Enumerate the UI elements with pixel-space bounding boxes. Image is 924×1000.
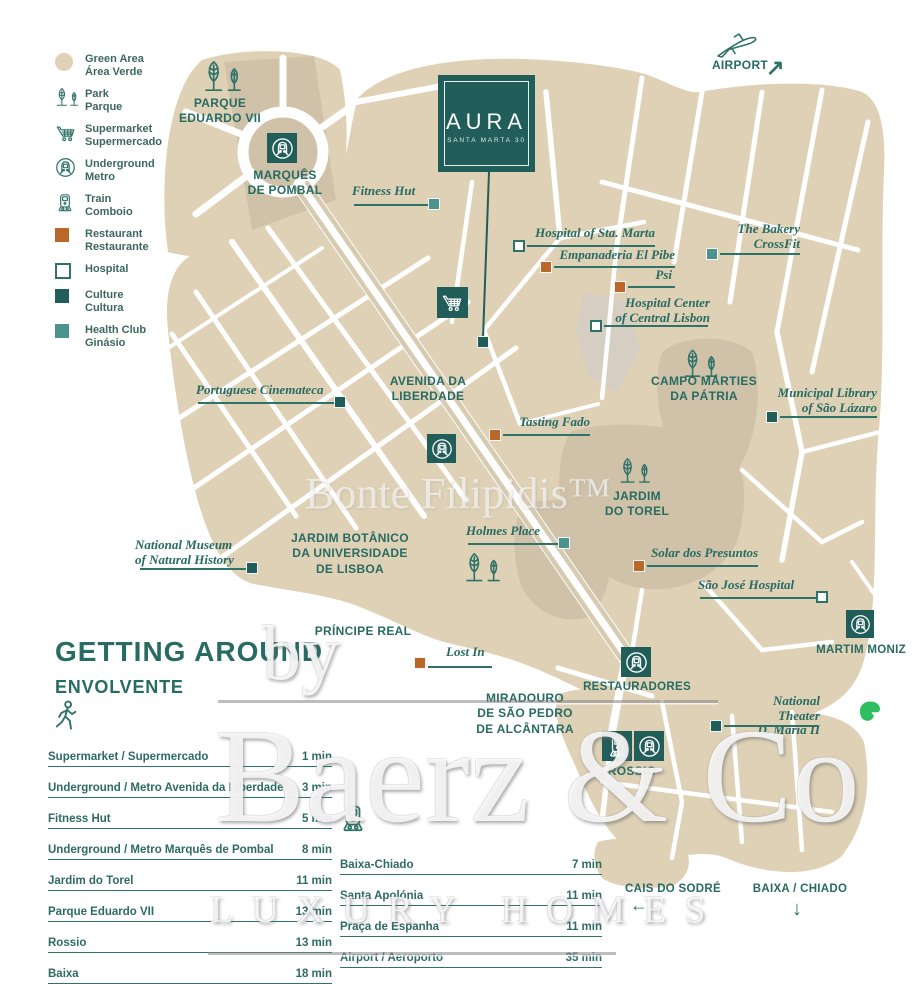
underground-metro-icon (55, 157, 76, 178)
legend-label: Green Area (85, 53, 144, 65)
legend-item-culture: CultureCultura (55, 288, 205, 314)
underground-metro-icon (638, 735, 661, 758)
poi-label-bakery-crossfit: The Bakery CrossFit (710, 222, 800, 251)
walking-person-icon (52, 700, 82, 736)
poi-label-empanaderia: Empanaderia El Pibe (553, 248, 675, 263)
poi-connector (503, 434, 590, 436)
poi-marker-hospital (816, 591, 828, 603)
getting-around-title: GETTING AROUND (55, 636, 323, 668)
poi-marker-restaurant (614, 281, 626, 293)
legend-item-hospital: Hospital (55, 262, 205, 279)
restaurant-swatch (55, 228, 69, 242)
health-club-swatch (55, 324, 69, 338)
poi-label-natural-history: National Museum of Natural History (135, 538, 245, 567)
train-icon (606, 735, 629, 758)
table-row: Airport / Aeroporto35 min (340, 937, 602, 968)
area-label-miradouro: MIRADOURO DE SÃO PEDRO DE ALCÂNTARA (470, 691, 580, 737)
poi-label-cinemateca: Portuguese Cinemateca (196, 383, 341, 398)
table-row: Fitness Hut5 min (48, 798, 332, 829)
park-trees-icon (55, 87, 81, 109)
poi-marker-restaurant (489, 429, 501, 441)
poi-connector (468, 543, 558, 545)
lisbon-neighbourhood-map: Green AreaÁrea Verde ParkParque Supermar… (0, 0, 924, 1000)
getting-around-subtitle: ENVOLVENTE (55, 677, 184, 698)
poi-label-hospital-sta-marta: Hospital of Sta. Marta (530, 226, 655, 241)
poi-connector (604, 325, 708, 327)
poi-label-fitness-hut: Fitness Hut (352, 184, 442, 199)
left-arrow-icon: ← (630, 895, 648, 916)
green-area-swatch (55, 53, 73, 71)
area-label-principe-real: PRÍNCIPE REAL (308, 624, 418, 639)
poi-label-hospital-center: Hospital Center of Central Lisbon (600, 296, 710, 325)
poi-marker-restaurant (633, 560, 645, 572)
supermarket-cart-icon (55, 122, 77, 144)
property-name: AURA (438, 109, 535, 135)
transit-times-table: Baixa-Chiado7 min Santa Apolónia11 min P… (340, 844, 602, 968)
train-icon (55, 192, 75, 213)
poi-connector (720, 253, 800, 255)
table-row: Jardim do Torel11 min (48, 860, 332, 891)
legend-item-health-club: Health ClubGinásio (55, 323, 205, 349)
area-label-rossio: ROSSIO (596, 764, 668, 779)
poi-marker-health-club (558, 537, 570, 549)
poi-label-psi: Psi (615, 268, 672, 283)
underground-metro-icon (850, 614, 871, 635)
area-label-baixa-chiado: BAIXA / CHIADO (748, 882, 852, 897)
poi-connector (647, 565, 758, 567)
poi-connector (724, 725, 818, 727)
property-marker-aura: AURA SANTA MARTA 30 (438, 75, 535, 172)
legend-item-train: TrainComboio (55, 192, 205, 218)
poi-marker-culture (334, 396, 346, 408)
metro-station-restauradores (621, 647, 651, 677)
area-label-jardim-do-torel: JARDIM DO TOREL (597, 489, 677, 520)
poi-marker-health-club (428, 198, 440, 210)
metro-station-rossio (634, 731, 664, 761)
table-row: Santa Apolónia11 min (340, 875, 602, 906)
poi-marker-restaurant (414, 657, 426, 669)
poi-label-tasting-fado: Tasting Fado (505, 415, 590, 430)
down-arrow-icon: ↓ (792, 898, 802, 921)
table-row: Praça de Espanha11 min (340, 906, 602, 937)
walking-times-table: Supermarket / Supermercado1 min Undergro… (48, 736, 332, 984)
area-label-avenida-da-liberdade: AVENIDA DA LIBERDADE (380, 374, 476, 405)
poi-connector (428, 666, 492, 668)
northeast-arrow-icon: ↗ (766, 55, 784, 81)
table-row: Rossio13 min (48, 922, 332, 953)
table-row: Baixa18 min (48, 953, 332, 984)
park-trees-icon (463, 552, 505, 586)
supermarket-cart-icon (441, 291, 464, 314)
poi-marker-hospital (513, 240, 525, 252)
legend-item-restaurant: RestaurantRestaurante (55, 227, 205, 253)
property-address: SANTA MARTA 30 (438, 137, 535, 144)
hospital-swatch (55, 263, 71, 279)
poi-connector (140, 568, 246, 570)
poi-label-solar-dos-presuntos: Solar dos Presuntos (645, 546, 758, 561)
table-row: Supermarket / Supermercado1 min (48, 736, 332, 767)
legend-item-underground: UndergroundMetro (55, 157, 205, 183)
area-label-marques-de-pombal: MARQUÊS DE POMBAL (240, 168, 330, 199)
area-label-parque-eduardo-vii: PARQUE EDUARDO VII (168, 96, 272, 127)
underground-metro-icon (271, 137, 294, 160)
metro-station-martim-moniz (846, 610, 874, 638)
park-trees-icon (618, 456, 654, 488)
table-row: Underground / Metro Marquês de Pombal8 m… (48, 829, 332, 860)
poi-label-municipal-library: Municipal Library of São Lázaro (772, 386, 877, 415)
table-row: Baixa-Chiado7 min (340, 844, 602, 875)
table-row: Underground / Metro Avenida da Liberdade… (48, 767, 332, 798)
train-station-rossio (602, 731, 632, 761)
poi-marker-restaurant (540, 261, 552, 273)
table-row: Parque Eduardo VII13 min (48, 891, 332, 922)
legend-item-green-area: Green AreaÁrea Verde (55, 52, 205, 78)
area-label-jardim-botanico: JARDIM BOTÂNICO DA UNIVERSIDADE DE LISBO… (288, 531, 412, 577)
poi-marker-culture (710, 720, 722, 732)
train-icon (338, 802, 368, 834)
poi-label-holmes-place: Holmes Place (466, 524, 551, 539)
park-trees-icon (202, 60, 246, 96)
poi-connector (628, 286, 675, 288)
metro-station-avenida (427, 434, 456, 463)
area-label-restauradores: RESTAURADORES (582, 680, 692, 695)
area-label-campo-martires: CAMPO MÁRTIES DA PÁTRIA (645, 374, 763, 405)
area-label-martim-moniz: MARTIM MONIZ (806, 643, 916, 658)
poi-label-lost-in: Lost In (446, 645, 501, 660)
poi-connector (780, 416, 877, 418)
poi-label-sao-jose-hospital: São José Hospital (698, 578, 808, 593)
property-location-marker (477, 336, 489, 348)
poi-connector (700, 597, 816, 599)
culture-swatch (55, 289, 69, 303)
underground-metro-icon (625, 651, 648, 674)
poi-label-national-theater: National Theater D. Maria II (730, 694, 820, 738)
underground-metro-icon (431, 438, 453, 460)
poi-connector (198, 402, 334, 404)
poi-marker-culture (246, 562, 258, 574)
poi-connector (354, 204, 430, 206)
supermarket-marker (437, 287, 468, 318)
evernote-elephant-icon (858, 700, 882, 726)
metro-station-marques-de-pombal (267, 133, 297, 163)
